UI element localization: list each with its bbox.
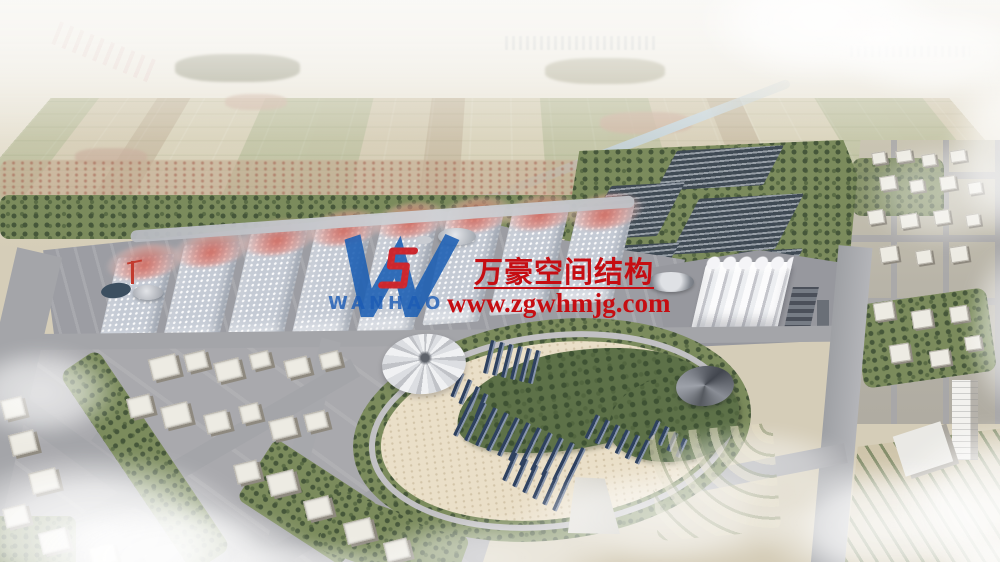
cloud: [965, 245, 1000, 415]
cloud: [0, 345, 120, 440]
clouds: [0, 0, 1000, 562]
aerial-rendering: WANHAO 万豪空间结构 www.zgwhmjg.com: [0, 0, 1000, 562]
cloud: [860, 140, 1000, 250]
